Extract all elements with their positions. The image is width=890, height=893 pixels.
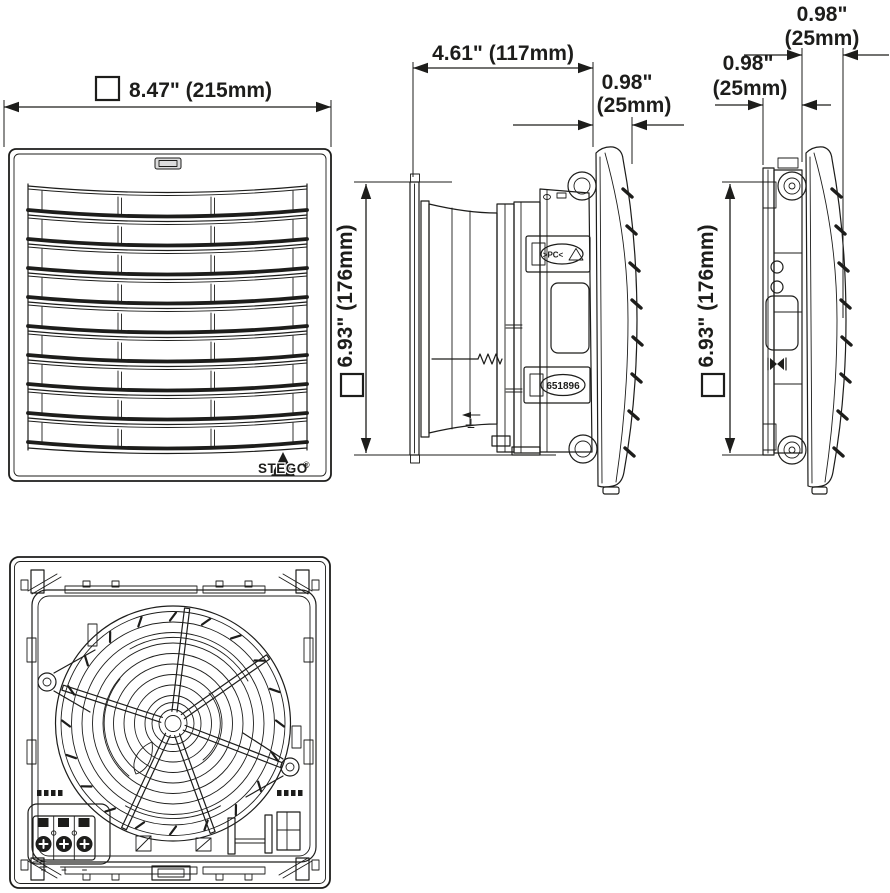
arrowhead-left <box>843 50 858 60</box>
square-section-icon <box>702 374 724 396</box>
dimension-front-height: 6.93" (176mm) <box>334 182 556 455</box>
dim-exhaust-height-text: 6.93" (176mm) <box>695 224 718 367</box>
louvered-cover-side <box>596 147 642 494</box>
front-top-clip <box>155 158 181 169</box>
label-recess <box>766 296 798 350</box>
louvered-cover-exhaust <box>806 147 851 494</box>
latch-knob-top <box>568 172 596 200</box>
arrowhead-right <box>316 102 331 112</box>
square-section-icon <box>341 374 363 396</box>
arrowhead-right <box>578 120 593 130</box>
material-label-plate: >PC< <box>526 236 590 272</box>
square-section-icon <box>96 77 119 100</box>
arrowhead-down <box>725 438 735 453</box>
side-view: >PC< 651896 <box>410 147 642 494</box>
mounting-plate <box>410 174 429 463</box>
dim-side-depth-text: 4.61" (117mm) <box>432 42 574 65</box>
arrowhead-right <box>787 50 802 60</box>
bowtie-symbol-icon <box>768 358 786 370</box>
arrowhead-left <box>632 120 647 130</box>
dim-side-cover-mm: (25mm) <box>597 94 672 117</box>
vent-slot-squares-right <box>277 790 303 796</box>
technical-drawing-page: STEGO ® 8.47" (215mm) 6.93" (176mm) <box>0 0 890 893</box>
arrowhead-up <box>361 184 371 199</box>
material-marking: >PC< <box>543 251 564 260</box>
vent-slot-squares-left <box>37 790 63 796</box>
dim-exhaust-cover-mm: (25mm) <box>785 27 860 50</box>
latch-knob-bottom <box>569 435 597 463</box>
fan-venturi <box>429 204 497 433</box>
fan-blade-hint <box>134 742 152 774</box>
registered-mark: ® <box>303 460 310 470</box>
vent-hole <box>771 281 783 293</box>
dimension-front-width: 8.47" (215mm) <box>4 77 331 147</box>
dim-side-cover-in: 0.98" <box>602 71 653 94</box>
part-number-plate: 651896 <box>524 367 590 403</box>
rear-view <box>10 557 330 888</box>
stego-logo: STEGO ® <box>258 452 310 476</box>
vent-hole <box>771 261 783 273</box>
clamp-spring <box>432 354 502 364</box>
dim-front-height-text: 6.93" (176mm) <box>334 224 357 367</box>
part-number-text: 651896 <box>546 381 580 392</box>
dim-front-width-text: 8.47" (215mm) <box>129 79 272 102</box>
arrowhead-right <box>578 63 593 73</box>
front-view: STEGO ® <box>9 149 331 481</box>
housing <box>492 189 592 455</box>
fan-body <box>497 202 540 453</box>
dim-exhaust-cover-in: 0.98" <box>797 3 848 26</box>
arrowhead-down <box>361 438 371 453</box>
cable-bracket <box>228 812 300 854</box>
dimension-side-depth: 4.61" (117mm) <box>413 42 593 177</box>
louver-grille <box>28 184 307 454</box>
arrowhead-left <box>802 100 817 110</box>
dim-exhaust-plate-mm: (25mm) <box>713 77 788 100</box>
exhaust-side-view <box>763 147 851 494</box>
arrowhead-left <box>413 63 428 73</box>
dimension-side-cover-depth: 0.98" (25mm) <box>513 71 684 164</box>
arrowhead-right <box>748 100 763 110</box>
exhaust-body <box>766 158 802 453</box>
dimension-exhaust-height: 6.93" (176mm) <box>695 182 772 455</box>
fan-guard <box>56 606 291 841</box>
arrowhead-up <box>725 184 735 199</box>
brand-text: STEGO <box>258 461 308 476</box>
filter-fan-drawing: STEGO ® 8.47" (215mm) 6.93" (176mm) <box>0 0 890 893</box>
arrowhead-left <box>4 102 19 112</box>
